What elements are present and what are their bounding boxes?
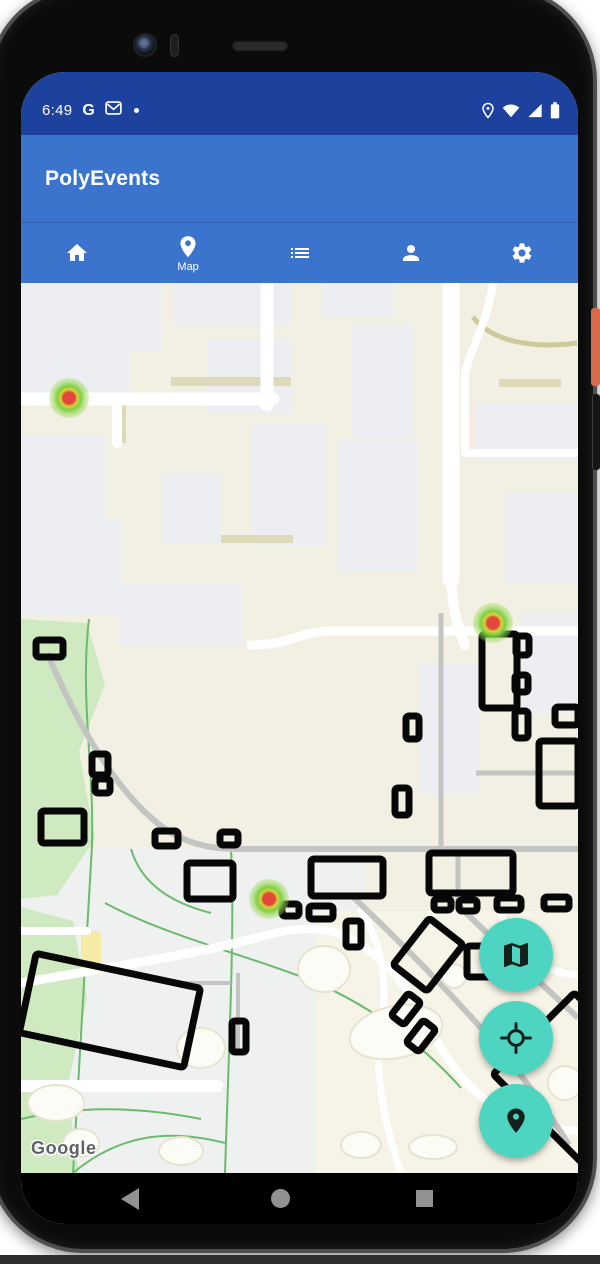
google-watermark: Google (31, 1138, 97, 1159)
crosshair-icon (499, 1021, 533, 1055)
front-camera (133, 33, 157, 57)
list-icon (288, 241, 312, 265)
my-location-fab[interactable] (479, 1001, 553, 1075)
cell-signal-icon (527, 103, 543, 118)
recents-square-icon (416, 1190, 433, 1207)
person-icon (399, 241, 423, 265)
app-bar: PolyEvents (21, 135, 578, 222)
tab-home[interactable] (21, 223, 132, 283)
earpiece-speaker (232, 40, 288, 51)
back-triangle-icon (121, 1188, 139, 1210)
tab-bar: Map (21, 222, 578, 283)
proximity-sensor (170, 34, 179, 57)
android-nav-bar (21, 1173, 578, 1224)
window-edge-strip (0, 1255, 600, 1264)
back-button[interactable] (100, 1173, 160, 1224)
device-screen: 6:49 G (21, 72, 578, 1224)
battery-icon (550, 102, 560, 119)
map-pin-icon (175, 234, 201, 260)
gmail-icon (105, 101, 122, 120)
clock: 6:49 (42, 102, 72, 119)
tab-settings[interactable] (467, 223, 578, 283)
app-title: PolyEvents (45, 167, 160, 191)
home-button[interactable] (250, 1173, 310, 1224)
wifi-icon (502, 103, 520, 118)
recents-button[interactable] (395, 1173, 455, 1224)
event-heat-marker[interactable] (49, 378, 89, 418)
gear-icon (510, 241, 534, 265)
tab-list[interactable] (244, 223, 355, 283)
tab-map[interactable]: Map (132, 223, 243, 283)
power-button (591, 308, 600, 386)
home-circle-icon (271, 1189, 290, 1208)
map-type-fab[interactable] (479, 918, 553, 992)
home-icon (65, 241, 89, 265)
place-marker-fab[interactable] (479, 1084, 553, 1158)
tab-map-label: Map (177, 261, 198, 273)
map-view[interactable]: Google (21, 283, 578, 1173)
event-heat-marker[interactable] (249, 879, 289, 919)
status-right-group (481, 102, 560, 119)
status-bar: 6:49 G (21, 72, 578, 135)
map-icon (500, 939, 532, 971)
emulator-screenshot: 6:49 G (0, 0, 600, 1264)
status-left-group: 6:49 G (42, 101, 139, 120)
location-active-icon (481, 102, 495, 119)
notification-dot-icon (134, 108, 139, 113)
google-g-icon: G (82, 103, 94, 119)
pin-icon (501, 1106, 531, 1136)
tab-profile[interactable] (355, 223, 466, 283)
volume-button (592, 394, 600, 470)
event-heat-marker[interactable] (473, 603, 513, 643)
fab-column (479, 918, 553, 1158)
